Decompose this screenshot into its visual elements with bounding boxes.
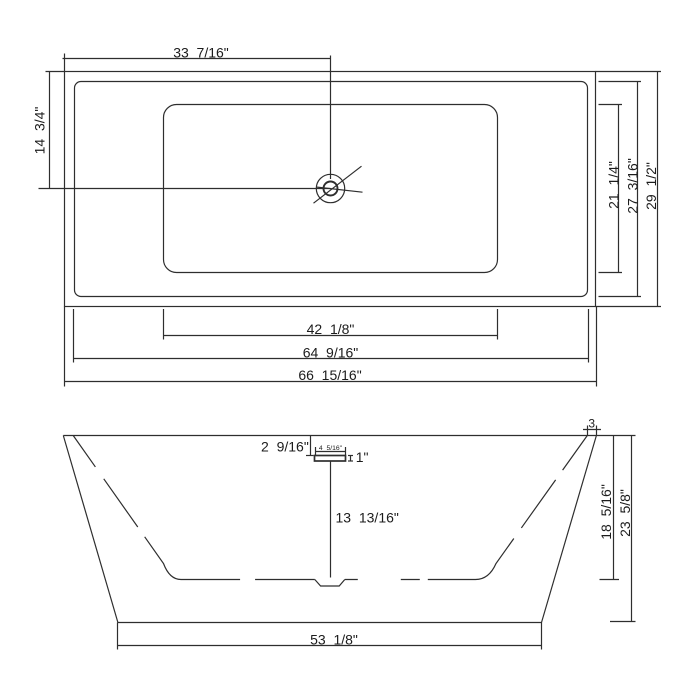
svg-text:27 3/16": 27 3/16" (625, 158, 641, 214)
svg-text:2 9/16": 2 9/16" (261, 438, 309, 454)
svg-text:3: 3 (588, 416, 595, 430)
svg-text:42 1/8": 42 1/8" (307, 321, 355, 337)
svg-text:4 5/16": 4 5/16" (319, 445, 343, 452)
svg-text:29 1/2": 29 1/2" (643, 162, 659, 210)
svg-text:53 1/8": 53 1/8" (310, 631, 358, 647)
svg-text:23 5/8": 23 5/8" (617, 489, 633, 537)
svg-text:66 15/16": 66 15/16" (298, 367, 361, 383)
svg-text:33 7/16": 33 7/16" (173, 44, 229, 60)
svg-text:64 9/16": 64 9/16" (303, 345, 359, 361)
svg-text:21 1/4": 21 1/4" (606, 161, 622, 209)
svg-text:18 5/16": 18 5/16" (598, 484, 614, 540)
svg-text:1": 1" (356, 449, 369, 465)
svg-text:14 3/4": 14 3/4" (32, 107, 48, 155)
svg-text:13 13/16": 13 13/16" (336, 509, 399, 525)
